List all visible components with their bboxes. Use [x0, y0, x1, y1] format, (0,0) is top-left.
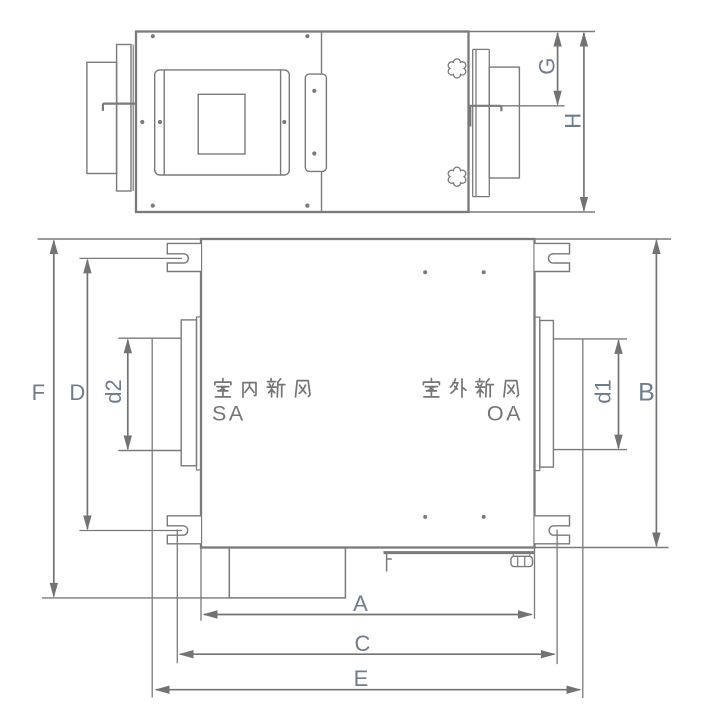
svg-text:G: G [534, 58, 559, 75]
svg-text:d2: d2 [101, 379, 126, 403]
svg-text:A: A [353, 591, 368, 616]
svg-text:D: D [69, 380, 85, 405]
svg-text:OA: OA [487, 402, 523, 426]
svg-text:C: C [355, 631, 371, 656]
svg-text:SA: SA [212, 402, 246, 426]
svg-text:H: H [561, 113, 586, 129]
svg-text:B: B [638, 379, 655, 407]
svg-text:d1: d1 [591, 379, 616, 403]
svg-text:E: E [354, 666, 369, 691]
svg-text:F: F [32, 380, 45, 405]
